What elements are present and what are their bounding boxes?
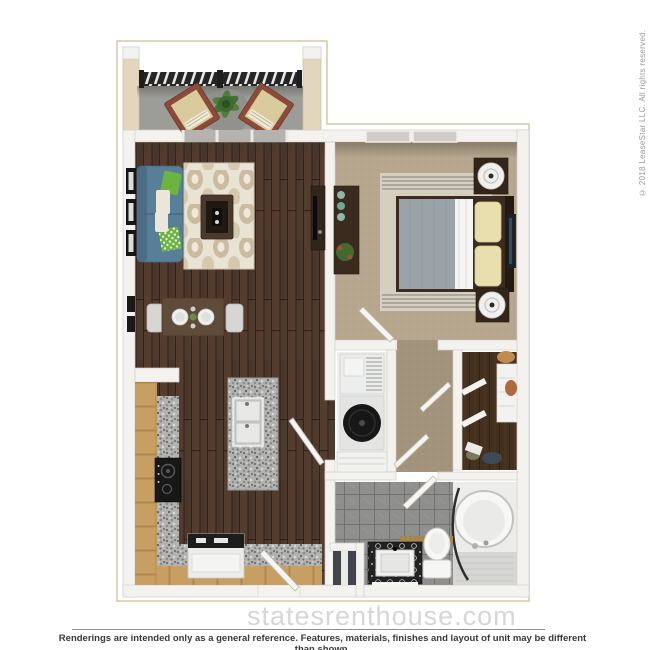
bathroom-vanity bbox=[368, 542, 422, 586]
living-shadow bbox=[135, 142, 325, 158]
coffee-table bbox=[201, 195, 233, 239]
dining-chair-right bbox=[226, 304, 243, 332]
washer bbox=[340, 354, 384, 394]
floorplan-rendering bbox=[0, 0, 650, 650]
bedroom-south-wall-right bbox=[438, 340, 517, 350]
balcony-right-wall-cap bbox=[303, 47, 321, 59]
balcony-sliding-door bbox=[182, 130, 288, 142]
bedroom-window-right bbox=[413, 131, 457, 142]
clothes-item bbox=[482, 452, 502, 464]
clothes-item bbox=[497, 351, 515, 363]
bedroom-shadow bbox=[335, 142, 517, 158]
dresser-plant bbox=[336, 243, 354, 261]
hall-opening-floor bbox=[325, 400, 335, 460]
nightstand-top bbox=[474, 158, 508, 194]
kitchen-island bbox=[228, 378, 278, 490]
clothes-item bbox=[505, 380, 517, 396]
kitchen-appliance bbox=[188, 534, 244, 578]
bedroom-window-left bbox=[366, 131, 410, 142]
bedroom-dresser bbox=[334, 186, 359, 274]
white-pillow bbox=[156, 190, 170, 214]
bedroom-south-wall-left bbox=[335, 340, 396, 350]
bed-pillow-bottom bbox=[475, 246, 501, 286]
bed-duvet bbox=[399, 199, 455, 289]
bed-pillow-top bbox=[475, 202, 501, 242]
television bbox=[313, 196, 317, 240]
dining-chair-left bbox=[147, 304, 164, 332]
floorplan-page: statesrenthouse.com Renderings are inten… bbox=[0, 0, 650, 650]
entry-closet-shelf bbox=[341, 551, 348, 585]
utility-closet bbox=[337, 354, 387, 472]
bed-blanket bbox=[455, 199, 473, 289]
toilet bbox=[423, 528, 451, 578]
tub-faucet bbox=[472, 543, 478, 549]
white-pillow-2 bbox=[155, 212, 168, 232]
utility-hall-wall bbox=[387, 350, 396, 472]
entry-closet-east-wall bbox=[356, 543, 364, 597]
bed bbox=[396, 196, 514, 292]
balcony-left-wall bbox=[123, 47, 139, 133]
wall-picture-frames bbox=[126, 168, 136, 332]
railing-post-right bbox=[297, 70, 302, 88]
railing-post-center bbox=[217, 70, 223, 88]
bath-north-wall-right bbox=[438, 472, 517, 480]
utility-shelf bbox=[337, 452, 387, 472]
watermark-text: statesrenthouse.com bbox=[247, 601, 517, 632]
nightstand-bottom bbox=[476, 288, 509, 322]
copyright-text: © 2018 LeaseStar LLC. All rights reserve… bbox=[638, 12, 647, 197]
tv-console bbox=[311, 186, 325, 250]
sofa bbox=[137, 166, 183, 262]
living-bedroom-wall bbox=[325, 142, 335, 400]
dryer bbox=[340, 396, 384, 450]
footer-divider bbox=[72, 629, 545, 630]
kitchen-pantry-counter bbox=[135, 368, 179, 382]
cooktop bbox=[155, 458, 181, 502]
south-wall-left bbox=[123, 585, 258, 597]
railing-post-left bbox=[139, 70, 144, 88]
toilet-tank bbox=[423, 560, 451, 578]
east-wall bbox=[517, 130, 529, 597]
bathtub bbox=[455, 491, 513, 549]
vanity-toekick bbox=[372, 582, 418, 586]
hall-closet-wall bbox=[453, 350, 462, 470]
balcony-left-wall-cap bbox=[123, 47, 139, 59]
bath-north-wall-left bbox=[325, 472, 396, 480]
kitchen-cabinets-left bbox=[135, 382, 157, 585]
disclaimer-text: Renderings are intended only as a genera… bbox=[50, 633, 595, 650]
balcony-right-wall bbox=[303, 47, 321, 133]
tv-screen bbox=[509, 218, 512, 264]
south-wall-right bbox=[300, 585, 529, 597]
